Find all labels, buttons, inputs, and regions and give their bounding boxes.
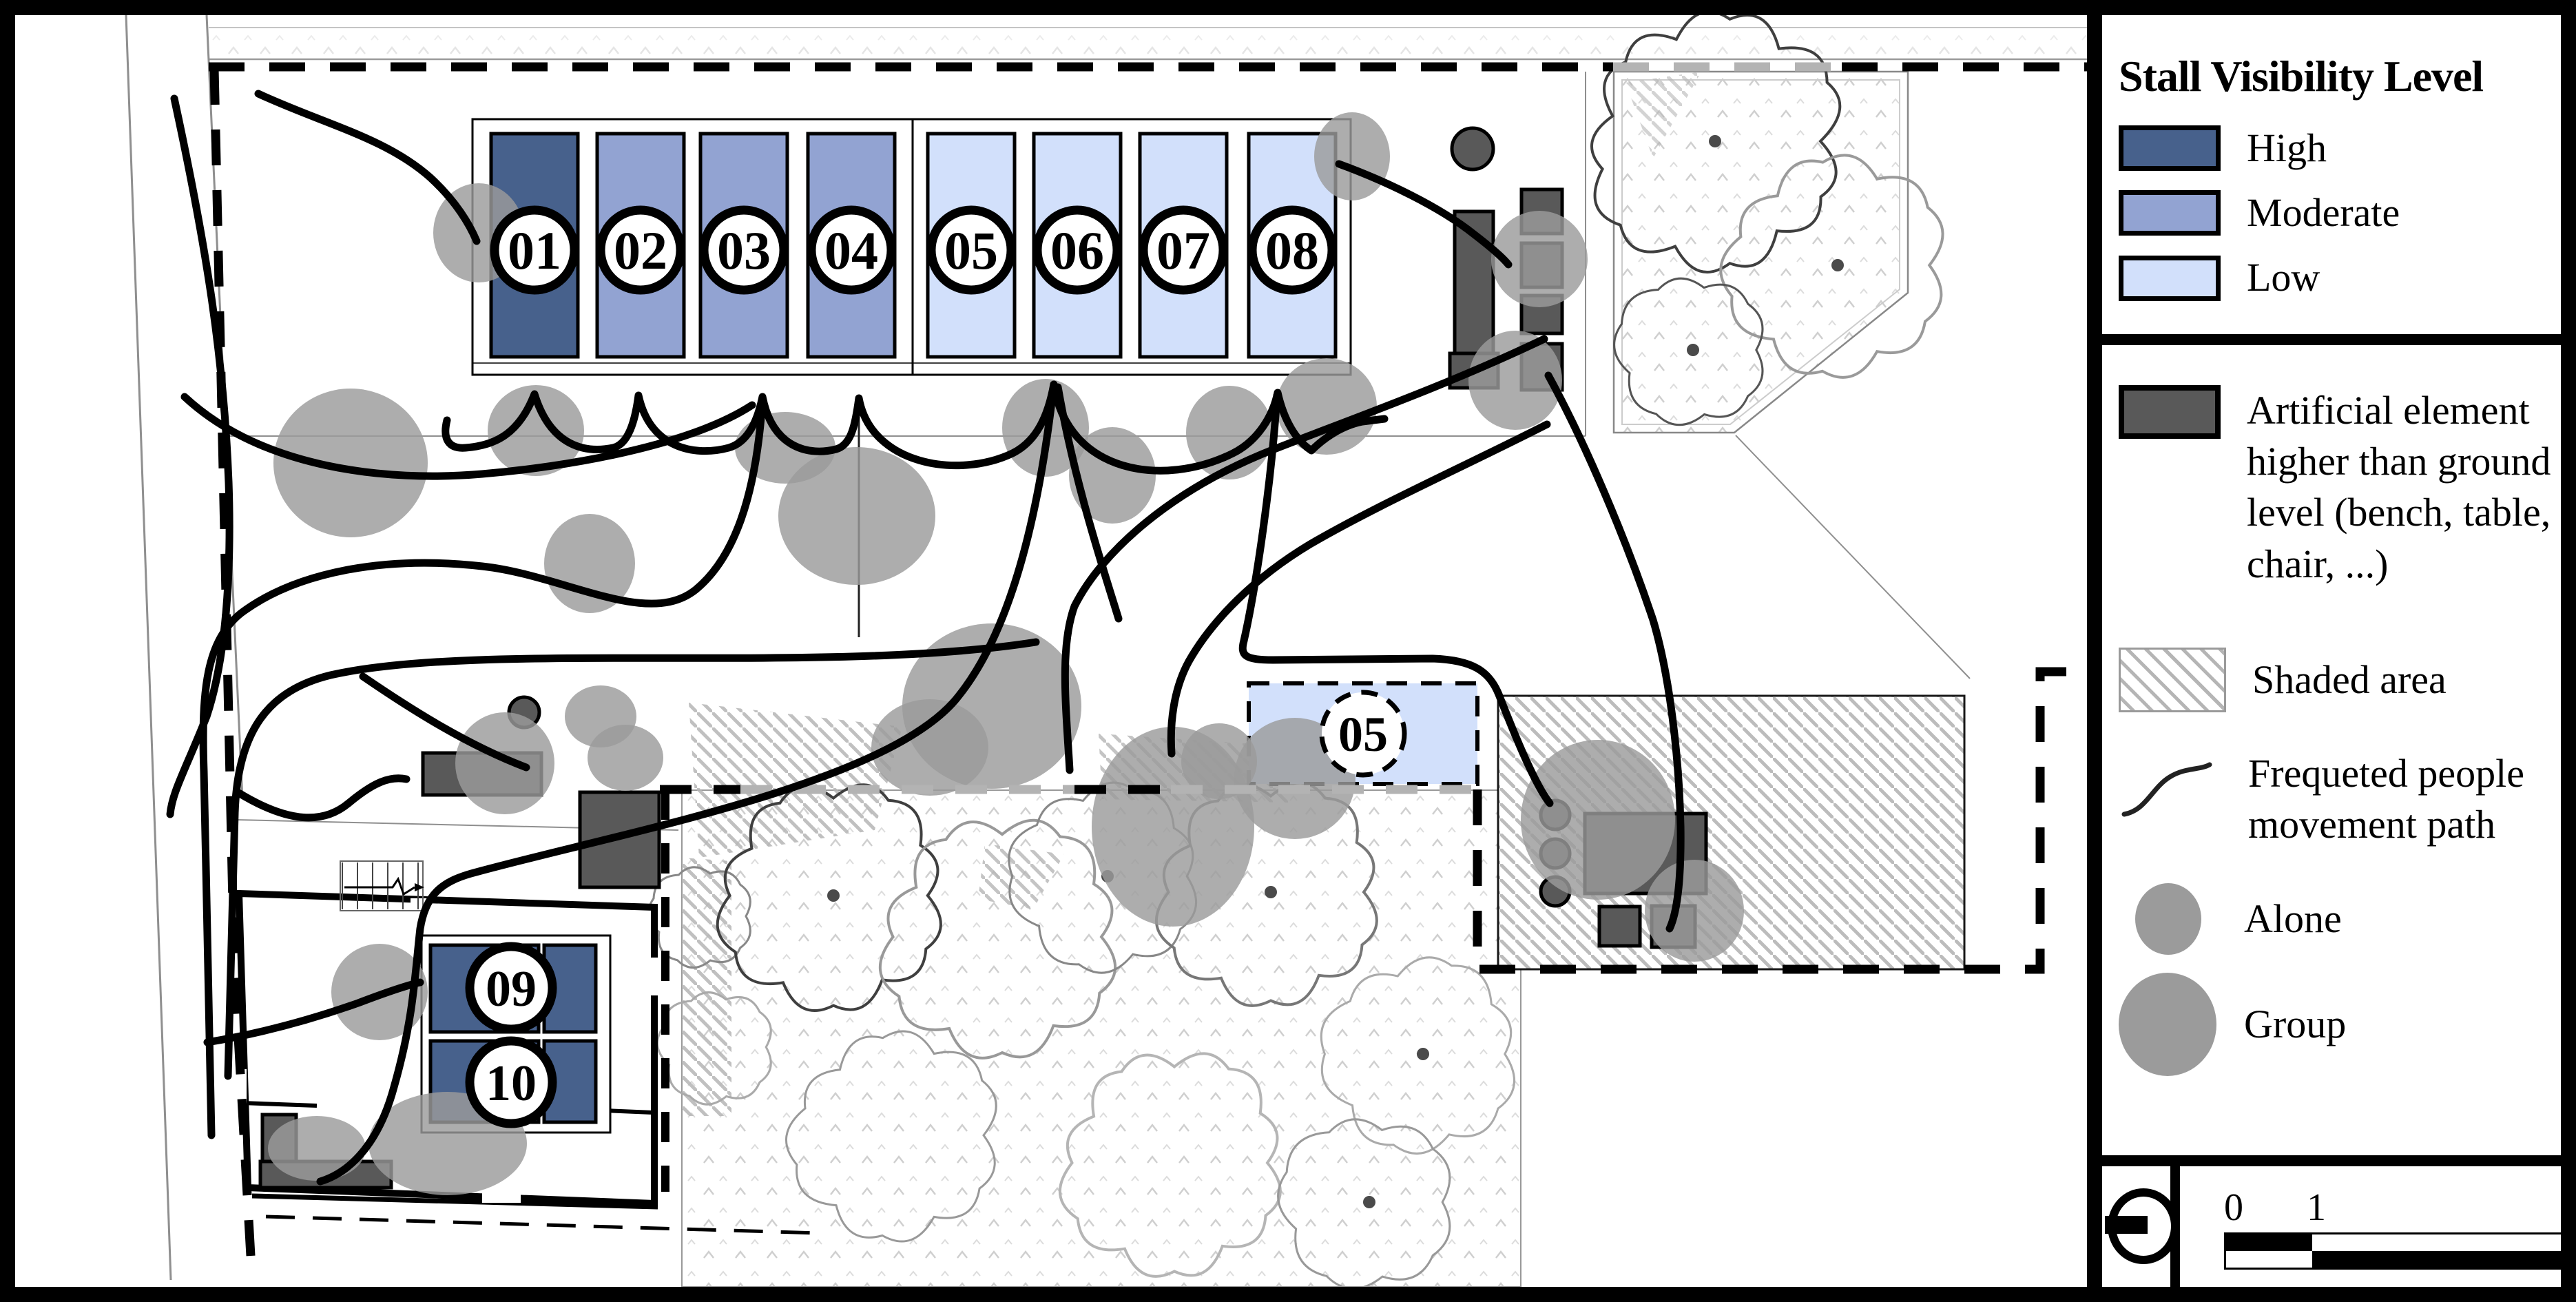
moderate-label: Moderate <box>2247 187 2400 238</box>
alone-marker <box>1645 860 1744 962</box>
legend-visibility-section: Stall Visibility Level High Moderate Low <box>2102 15 2561 345</box>
low-label: Low <box>2247 252 2320 303</box>
artificial-element-swatch <box>2119 385 2221 439</box>
movement-path-icon <box>2119 748 2222 824</box>
stall-09-number: 09 <box>486 961 537 1017</box>
tree-trunk-dot <box>1687 344 1699 356</box>
stall-03-number: 03 <box>717 220 771 280</box>
north-arrow-cell <box>2102 1166 2180 1287</box>
north-arrow-bar <box>2105 1216 2148 1234</box>
tree-trunk-dot <box>1709 135 1721 147</box>
legend-symbols-section: Artificial element higher than ground le… <box>2102 345 2561 1166</box>
low-swatch <box>2119 256 2221 301</box>
stall-06-number: 06 <box>1050 220 1104 280</box>
legend-item-high: High <box>2119 123 2561 174</box>
scale-bar <box>2224 1232 2567 1270</box>
artificial-element <box>1599 907 1640 946</box>
group-label: Group <box>2244 999 2346 1050</box>
legend-footer-section: 0 1 4m <box>2102 1166 2561 1287</box>
legend-item-group: Group <box>2119 973 2561 1076</box>
legend-item-artificial: Artificial element higher than ground le… <box>2119 385 2561 590</box>
scale-segment <box>2312 1234 2565 1251</box>
stall-10-number: 10 <box>486 1055 537 1112</box>
group-icon <box>2119 973 2216 1076</box>
shaded-area-label: Shaded area <box>2252 654 2447 705</box>
high-swatch <box>2119 125 2221 171</box>
alone-label: Alone <box>2244 893 2342 944</box>
stall-01-number: 01 <box>508 220 561 280</box>
legend-panel: Stall Visibility Level High Moderate Low… <box>2087 15 2561 1287</box>
shade-patch <box>682 858 731 1116</box>
stall-05-relocated-number: 05 <box>1338 707 1388 762</box>
legend-item-path: Frequeted people movement path <box>2119 748 2561 850</box>
group-marker <box>778 447 935 585</box>
alone-marker <box>588 725 663 791</box>
shaded-area-swatch <box>2119 648 2226 712</box>
artificial-element-label: Artificial element higher than ground le… <box>2247 385 2561 590</box>
alone-marker <box>455 712 554 814</box>
scale-bar-cell: 0 1 4m <box>2190 1166 2561 1287</box>
site-plan-canvas: 0102030405060708 09 10 05 <box>15 15 2087 1287</box>
scale-tick-0: 0 <box>2224 1186 2243 1230</box>
legend-item-moderate: Moderate <box>2119 187 2561 238</box>
stall-07-number: 07 <box>1156 220 1210 280</box>
alone-marker <box>268 1116 366 1181</box>
legend-item-low: Low <box>2119 252 2561 303</box>
artificial-element-round <box>1452 128 1493 169</box>
stall-04-number: 04 <box>824 220 878 280</box>
tree-trunk-dot <box>1265 886 1277 898</box>
legend-item-shaded: Shaded area <box>2119 648 2561 712</box>
legend-item-alone: Alone <box>2119 883 2561 955</box>
scale-segment <box>2226 1234 2312 1251</box>
scale-segment <box>2226 1251 2312 1268</box>
group-marker <box>1521 740 1675 900</box>
scale-tick-1: 1 <box>2307 1186 2326 1230</box>
group-marker <box>273 389 428 537</box>
scale-segment <box>2312 1251 2565 1268</box>
relocated-stall-badge: 05 <box>1322 692 1404 775</box>
stall-02-number: 02 <box>614 220 667 280</box>
sidewalk-band <box>209 28 2087 59</box>
high-label: High <box>2247 123 2327 174</box>
tree-trunk-dot <box>827 889 840 902</box>
alone-icon <box>2135 883 2201 955</box>
scale-tick-4m: 4m <box>2567 1186 2576 1230</box>
tree-trunk-dot <box>1831 259 1844 271</box>
tree-trunk-dot <box>1363 1196 1375 1208</box>
moderate-swatch <box>2119 190 2221 236</box>
stall-08-number: 08 <box>1265 220 1319 280</box>
movement-path-label: Frequeted people movement path <box>2248 748 2561 850</box>
legend-title: Stall Visibility Level <box>2119 51 2561 102</box>
site-plan-figure: 0102030405060708 09 10 05 Stall Visibili… <box>0 0 2576 1302</box>
stall-05-number: 05 <box>944 220 998 280</box>
alone-marker <box>1314 112 1390 200</box>
tree-trunk-dot <box>1417 1048 1429 1060</box>
